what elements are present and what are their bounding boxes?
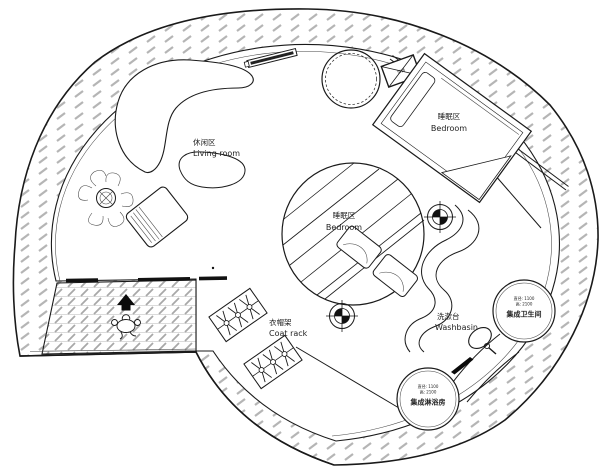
shower-pod: 直径: 1100 高: 2100 集成淋浴房: [397, 368, 459, 430]
floor-plan-canvas: 休闲区 Living room 空调 睡眠区 Bedroom: [0, 0, 611, 473]
living-label-zh: 休闲区: [193, 137, 216, 147]
washbasin-label-zh: 洗漱台: [437, 311, 460, 321]
toilet-pod-name: 集成卫生间: [506, 310, 542, 319]
bedroom-center-label-zh: 睡眠区: [333, 211, 356, 220]
coat-rack-label-en: Coat rack: [269, 329, 308, 338]
shower-pod-spec-diameter: 直径: 1100: [418, 383, 439, 389]
entry-walkway-floor: [42, 280, 196, 354]
floor-plan-page: 休闲区 Living room 空调 睡眠区 Bedroom: [0, 0, 611, 473]
shower-pod-spec-height: 高: 2100: [420, 389, 437, 395]
bedroom-upper-label-zh: 睡眠区: [438, 112, 461, 121]
plan-dot: [212, 267, 214, 269]
toilet-pod-spec-height: 高: 2100: [516, 301, 533, 307]
coat-rack-label-zh: 衣帽架: [269, 317, 292, 327]
washbasin-label-en: Washbasin: [435, 323, 478, 332]
toilet-pod: 直径: 1100 高: 2100 集成卫生间: [493, 280, 555, 342]
living-label-en: Living room: [193, 149, 240, 158]
bedroom-center-label-en: Bedroom: [326, 223, 362, 232]
toilet-pod-spec-diameter: 直径: 1100: [514, 295, 535, 301]
shower-pod-name: 集成淋浴房: [410, 398, 446, 407]
bedroom-upper-label-en: Bedroom: [431, 124, 467, 133]
center-bed-platform: [282, 163, 424, 305]
